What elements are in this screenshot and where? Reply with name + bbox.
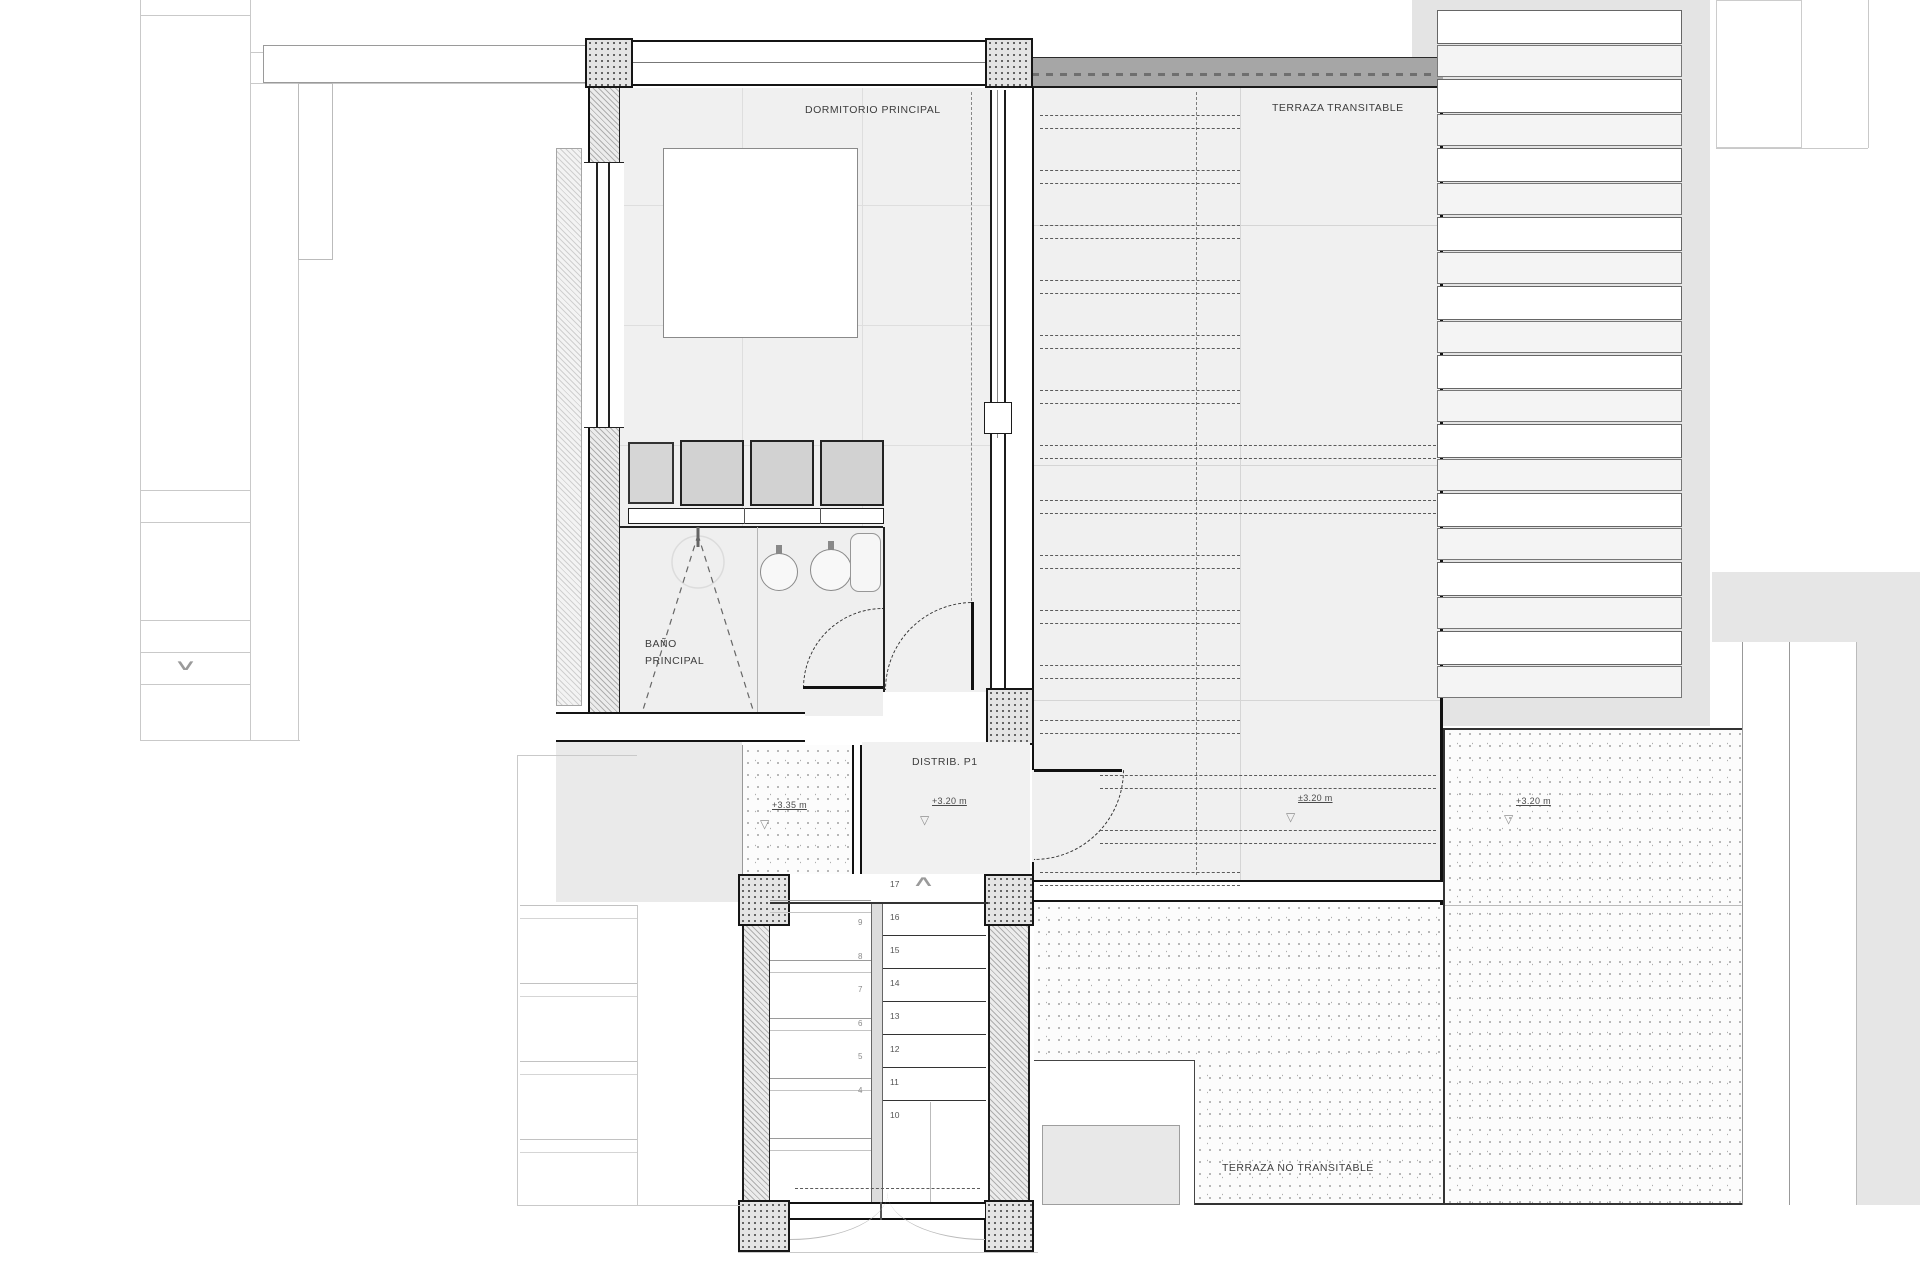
- window-swing-arc: [790, 1192, 888, 1240]
- context-tread: [520, 1074, 637, 1075]
- decking-joint-dashed: [1040, 403, 1240, 404]
- stair-number: 16: [890, 912, 906, 922]
- context-line: [140, 0, 141, 740]
- context-tread: [520, 1152, 637, 1153]
- pergola-slat: [1437, 183, 1682, 215]
- decking-joint-dashed: [1040, 665, 1240, 666]
- context-beam: [263, 45, 587, 83]
- elevation-marker-terrace: ±3.20 m: [1298, 793, 1333, 803]
- stair-tread-line: [883, 1100, 986, 1101]
- faucet: [776, 545, 782, 554]
- stair-tread-faint: [770, 1030, 871, 1031]
- counter-divider: [744, 508, 745, 524]
- pergola-slat: [1437, 562, 1682, 596]
- patio-slab: [1042, 1125, 1180, 1205]
- stair-tread-faint: [770, 1018, 871, 1019]
- stairs-up-chevron-icon: ∧: [911, 872, 935, 890]
- landing-divider: [930, 1102, 931, 1202]
- decking-joint-dashed: [1040, 610, 1240, 611]
- west-window-glass: [596, 162, 598, 428]
- context-roof: [1716, 0, 1802, 148]
- bedroom-door-leaf: [971, 602, 974, 690]
- west-window-glass: [608, 162, 610, 428]
- pergola-slat: [1437, 424, 1682, 458]
- stair-tread-faint: [770, 1090, 871, 1091]
- decking-joint-dashed: [1100, 788, 1436, 789]
- washbasin: [810, 549, 852, 591]
- decking-joint-dashed: [1040, 293, 1240, 294]
- stair-tread-faint: [770, 900, 871, 901]
- context-tread: [520, 1139, 637, 1140]
- side-path-band: [1712, 572, 1920, 642]
- stair-tread-line: [883, 935, 986, 936]
- terrace-boundary: [1443, 728, 1445, 1205]
- pergola-slat: [1437, 528, 1682, 560]
- stair-number: 15: [890, 945, 906, 955]
- terrace-south-wall: [1030, 880, 1443, 902]
- context-tread: [520, 918, 637, 919]
- stair-tread-faint: [770, 972, 871, 973]
- decking-joint-dashed: [1040, 568, 1240, 569]
- side-path-strip: [1742, 642, 1790, 1205]
- stair-tread-faint: [770, 1078, 871, 1079]
- terrace-door-leaf: [1034, 769, 1122, 772]
- east-glazing: [990, 90, 1006, 438]
- tile-line: [1240, 88, 1241, 902]
- wardrobe-unit: [820, 440, 884, 506]
- decking-joint-dashed: [1040, 115, 1240, 116]
- terrace-joint-line: [1445, 905, 1742, 906]
- tile-line: [1032, 465, 1440, 466]
- roof-edge-dashed: [971, 92, 973, 686]
- stair-number-faint: 9: [858, 918, 868, 927]
- pergola-slat: [1437, 114, 1682, 146]
- west-window: [584, 162, 624, 428]
- context-line: [140, 740, 300, 741]
- pergola-slat: [1437, 459, 1682, 491]
- wall-leaf-line: [587, 62, 1032, 63]
- decking-joint-dashed: [1040, 170, 1240, 171]
- terrace-parapet-wall: [1032, 57, 1443, 88]
- pergola-slat: [1437, 79, 1682, 113]
- ground-line: [738, 1252, 1038, 1253]
- side-yard: [556, 742, 742, 902]
- toilet: [850, 533, 881, 592]
- stair-railing: [871, 902, 883, 1202]
- tile-line: [1032, 700, 1440, 701]
- context-line: [517, 755, 518, 1205]
- context-tread: [520, 1061, 637, 1062]
- stair-tread-line: [883, 1001, 986, 1002]
- distributor-label: DISTRIB. P1: [912, 756, 978, 768]
- decking-joint-dashed: [1040, 335, 1240, 336]
- pergola-slat: [1437, 252, 1682, 284]
- stair-number: 12: [890, 1044, 906, 1054]
- decking-joint-dashed: [1040, 183, 1240, 184]
- stair-number: 14: [890, 978, 906, 988]
- pergola-slat: [1437, 666, 1682, 698]
- context-line: [517, 755, 637, 756]
- pergola-slat: [1437, 148, 1682, 182]
- decking-joint-dashed: [1040, 872, 1240, 873]
- terrace-non-walkable-area: [1445, 728, 1742, 1205]
- pergola-slat: [1437, 286, 1682, 320]
- concrete-column: [986, 688, 1034, 745]
- elevation-marker-distributor: +3.20 m: [932, 796, 967, 806]
- context-duct: [298, 83, 333, 260]
- decking-joint-dashed: [1040, 225, 1240, 226]
- pergola-slat: [1437, 493, 1682, 527]
- stair-number: 17: [890, 879, 906, 889]
- terrace-west-wall: [1032, 88, 1034, 770]
- pergola-slat: [1437, 631, 1682, 665]
- pergola-slat: [1437, 217, 1682, 251]
- washbasin: [760, 553, 798, 591]
- decking-joint-dashed: [1040, 445, 1436, 446]
- east-glazing-line: [997, 90, 998, 438]
- shower: [628, 527, 758, 717]
- decking-joint-dashed: [1040, 555, 1240, 556]
- context-line: [250, 0, 251, 740]
- stair-number: 10: [890, 1110, 906, 1120]
- stair-west-wall: [742, 926, 770, 1200]
- floor-plan-canvas: ∨ TERRAZA NO TRANSITABLE +3.20 m ▽ TERRA…: [0, 0, 1920, 1280]
- wardrobe-unit: [680, 440, 744, 506]
- decking-joint-dashed: [1040, 500, 1436, 501]
- roof-edge-dashed: [1196, 92, 1198, 875]
- context-line: [517, 1205, 742, 1206]
- terrace-non-walkable-area: [1034, 902, 1443, 1060]
- terrace-walkable-label: TERRAZA TRANSITABLE: [1272, 102, 1404, 114]
- context-line: [140, 684, 250, 685]
- landing-wall: [852, 745, 862, 874]
- stair-east-wall: [988, 926, 1030, 1200]
- context-line: [1868, 0, 1869, 148]
- stair-number-faint: 6: [858, 1019, 868, 1028]
- decking-joint-dashed: [1100, 830, 1436, 831]
- context-line: [1716, 148, 1868, 149]
- stair-tread-faint: [770, 912, 871, 913]
- terrace-boundary: [1445, 728, 1742, 730]
- stair-number-faint: 8: [858, 952, 868, 961]
- faucet: [828, 541, 834, 550]
- stairs-down-chevron-icon: ∨: [173, 656, 197, 674]
- stair-number-faint: 4: [858, 1086, 868, 1095]
- decking-joint-dashed: [1040, 513, 1436, 514]
- context-line: [298, 260, 299, 740]
- glazing-mullion: [984, 402, 1012, 434]
- elevation-triangle-icon: ▽: [1286, 812, 1295, 822]
- context-line: [140, 522, 250, 523]
- concrete-column: [985, 38, 1033, 88]
- pergola-slat: [1437, 390, 1682, 422]
- pergola-slat: [1437, 45, 1682, 77]
- bathroom-label: BAÑO: [645, 638, 677, 650]
- concrete-column: [738, 1200, 790, 1252]
- concrete-column: [585, 38, 633, 88]
- pergola-slat: [1437, 321, 1682, 353]
- context-line: [140, 15, 250, 16]
- decking-joint-dashed: [1100, 843, 1436, 844]
- concrete-column: [984, 1200, 1034, 1252]
- wardrobe-unit: [628, 442, 674, 504]
- decking-joint-dashed: [1040, 885, 1240, 886]
- stair-tread-faint: [770, 1138, 871, 1139]
- stair-number: 13: [890, 1011, 906, 1021]
- terrace-non-walkable-area: [1195, 1060, 1443, 1205]
- counter-divider: [820, 508, 821, 524]
- context-line: [637, 905, 638, 1205]
- decking-joint-dashed: [1100, 775, 1436, 776]
- stair-tread-line: [883, 1034, 986, 1035]
- pergola-slat: [1437, 355, 1682, 389]
- context-tread: [520, 905, 637, 906]
- terrace-non-walkable-label: TERRAZA NO TRANSITABLE: [1222, 1162, 1374, 1174]
- elevation-triangle-icon: ▽: [920, 815, 929, 825]
- context-line: [140, 652, 250, 653]
- lintel-dashed: [795, 1188, 980, 1189]
- elevation-triangle-icon: ▽: [1504, 814, 1513, 824]
- stair-number-faint: 5: [858, 1052, 868, 1061]
- stair-tread-line: [883, 968, 986, 969]
- decking-joint-dashed: [1040, 348, 1240, 349]
- wardrobe-counter: [628, 508, 884, 524]
- decking-joint-dashed: [1040, 623, 1240, 624]
- east-wall-lower: [990, 438, 1006, 688]
- decking-joint-dashed: [1040, 390, 1240, 391]
- bathroom-east-wall: [883, 527, 885, 692]
- elevation-marker-terrace-right: +3.20 m: [1516, 796, 1551, 806]
- decking-joint-dashed: [1040, 280, 1240, 281]
- decking-joint-dashed: [1040, 733, 1240, 734]
- exterior-wall-outer: [556, 148, 582, 706]
- bedroom-label: DORMITORIO PRINCIPAL: [805, 104, 941, 116]
- stair-tread-faint: [770, 1150, 871, 1151]
- bedroom-north-wall: [587, 40, 1032, 86]
- elevation-marker-landing: +3.35 m: [772, 800, 807, 810]
- wardrobe-unit: [750, 440, 814, 506]
- elevation-triangle-icon: ▽: [760, 819, 769, 829]
- stair-tread-line: [883, 1067, 986, 1068]
- context-tread: [520, 996, 637, 997]
- decking-joint-dashed: [1040, 458, 1436, 459]
- stair-number: 11: [890, 1077, 906, 1087]
- bathroom-south-wall: [556, 712, 805, 742]
- stair-number-faint: 7: [858, 985, 868, 994]
- pergola-slat: [1437, 10, 1682, 44]
- pergola-slat: [1437, 597, 1682, 629]
- terrace-boundary: [1195, 1203, 1742, 1205]
- bed: [663, 148, 858, 338]
- context-tread: [520, 983, 637, 984]
- side-path-col: [1856, 642, 1920, 1205]
- context-line: [140, 490, 250, 491]
- bathroom-label: PRINCIPAL: [645, 655, 704, 667]
- decking-joint-dashed: [1040, 238, 1240, 239]
- decking-joint-dashed: [1040, 678, 1240, 679]
- decking-joint-dashed: [1040, 128, 1240, 129]
- window-swing-arc: [887, 1192, 985, 1240]
- decking-joint-dashed: [1040, 720, 1240, 721]
- concrete-column: [984, 874, 1034, 926]
- context-line: [140, 620, 250, 621]
- stairwell-floor: [790, 874, 988, 1202]
- stair-tread-faint: [770, 960, 871, 961]
- stair-top-edge: [770, 902, 988, 904]
- bath-door-leaf: [803, 686, 883, 689]
